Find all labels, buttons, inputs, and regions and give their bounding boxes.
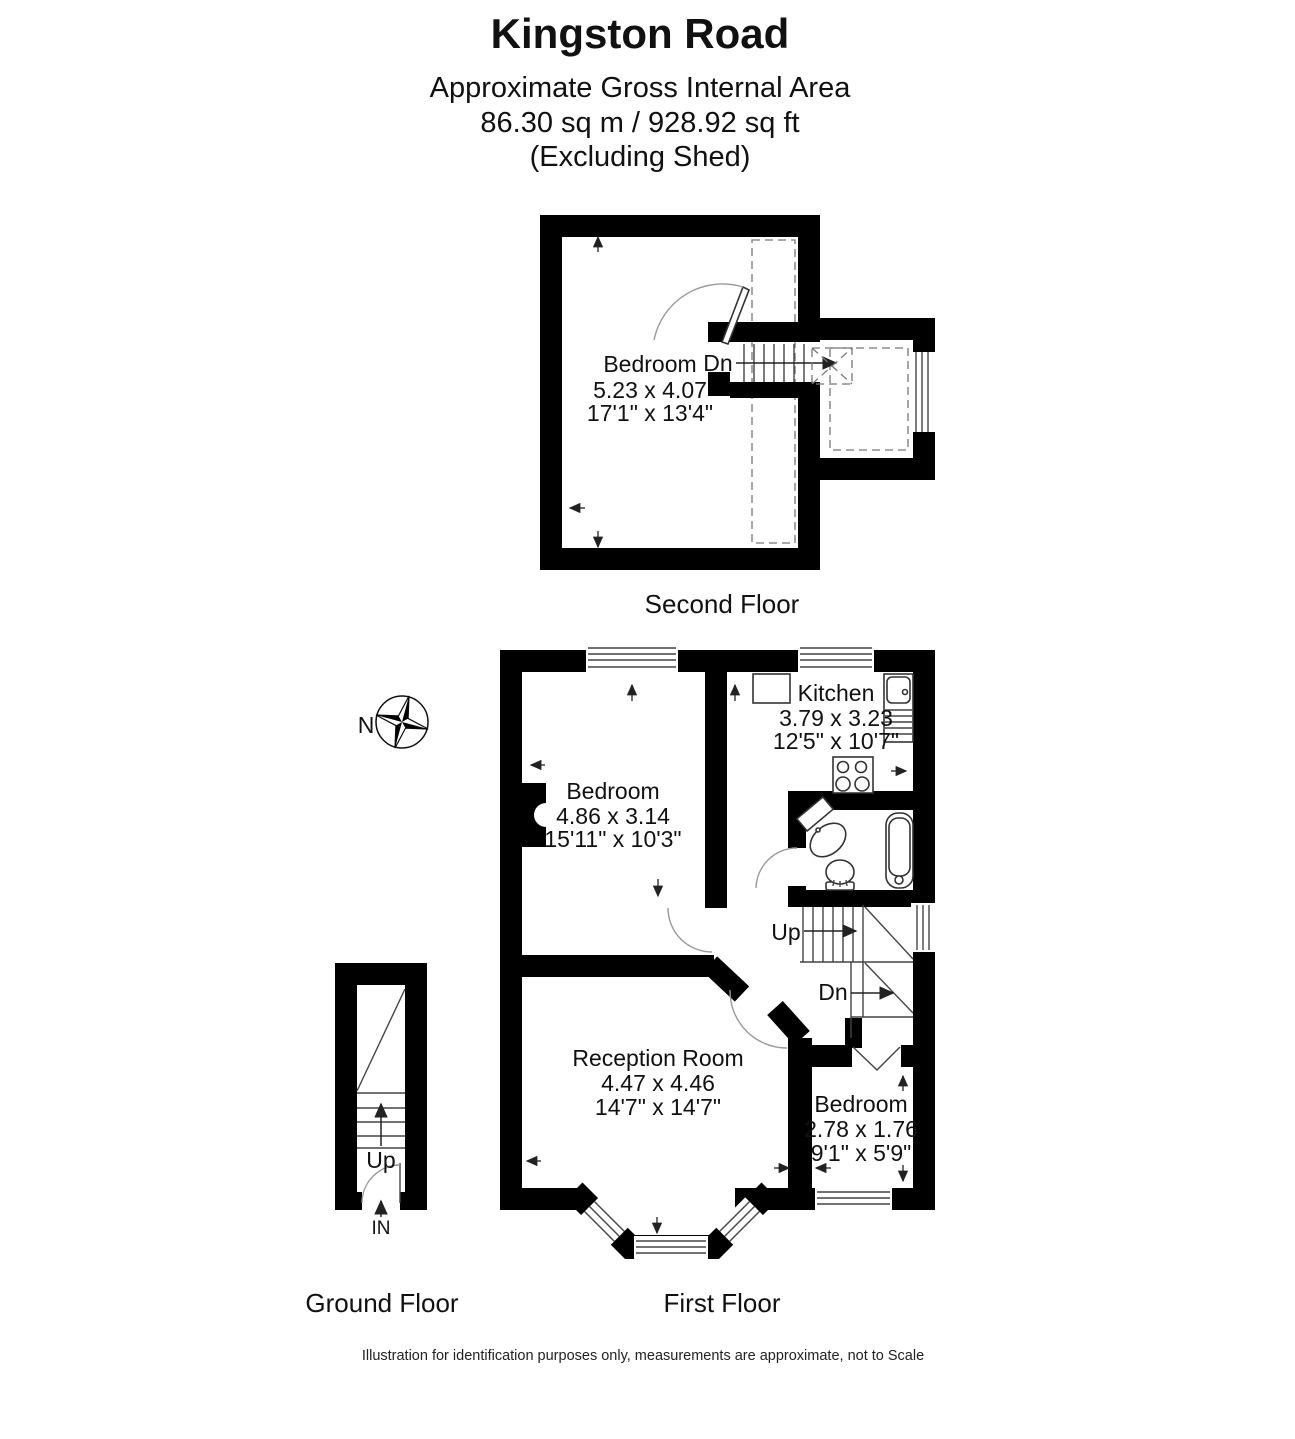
ground-floor-plan: Up IN Ground Floor: [305, 963, 459, 1318]
floorplan-page: Kingston Road Approximate Gross Internal…: [0, 0, 1295, 1434]
ff-bedroom-imperial: 15'11" x 10'3": [544, 826, 681, 852]
gf-in-label: IN: [372, 1218, 391, 1239]
second-floor-plan: Bedroom 5.23 x 4.07 17'1" x 13'4" Dn Sec…: [540, 215, 937, 619]
ff-bedroom-window: [586, 646, 678, 674]
sf-bedroom-label: Bedroom: [603, 351, 696, 377]
ground-floor-caption: Ground Floor: [305, 1288, 459, 1318]
ff-stair-window: [911, 903, 937, 952]
ff-dn-label: Dn: [818, 979, 847, 1005]
ff-reception-metric: 4.47 x 4.46: [601, 1070, 715, 1096]
title-note: (Excluding Shed): [530, 141, 751, 173]
ff-up-label: Up: [771, 919, 800, 945]
ff-kitchen-label: Kitchen: [798, 680, 875, 706]
ff-small-bedroom-label: Bedroom: [814, 1091, 907, 1117]
first-floor-caption: First Floor: [664, 1288, 781, 1318]
ff-small-bedroom-imperial: 9'1" x 5'9": [811, 1140, 912, 1166]
ff-small-bedroom-metric: 2.78 x 1.76: [804, 1116, 918, 1142]
title-area: 86.30 sq m / 928.92 sq ft: [480, 107, 799, 139]
first-floor-plan: Kitchen 3.79 x 3.23 12'5" x 10'7" Bedroo…: [500, 646, 937, 1318]
ff-kitchen-window: [798, 646, 874, 674]
sf-bedroom-imperial: 17'1" x 13'4": [587, 400, 713, 426]
ff-kitchen-counter: [753, 674, 790, 703]
ff-bedroom-label: Bedroom: [566, 778, 659, 804]
sf-dn-label: Dn: [703, 350, 732, 376]
title-block: Kingston Road Approximate Gross Internal…: [430, 10, 852, 173]
title-subtitle: Approximate Gross Internal Area: [430, 72, 852, 104]
ff-bathroom-bath: [886, 813, 913, 888]
ff-reception-imperial: 14'7" x 14'7": [595, 1094, 721, 1120]
compass-north-label: N: [358, 712, 375, 738]
compass-icon: N: [358, 689, 435, 755]
sf-extension-window: [911, 352, 937, 432]
disclaimer-text: Illustration for identification purposes…: [362, 1348, 924, 1364]
gf-up-label: Up: [366, 1147, 395, 1173]
ff-kitchen-hob: [833, 757, 873, 793]
ff-small-bedroom-window: [815, 1186, 892, 1212]
ff-bathroom-toilet: [826, 860, 854, 890]
ff-kitchen-imperial: 12'5" x 10'7": [773, 728, 899, 754]
page-title: Kingston Road: [491, 10, 790, 57]
ff-reception-label: Reception Room: [572, 1045, 743, 1071]
floorplan-canvas: Kingston Road Approximate Gross Internal…: [0, 0, 1295, 1434]
second-floor-caption: Second Floor: [645, 589, 800, 619]
